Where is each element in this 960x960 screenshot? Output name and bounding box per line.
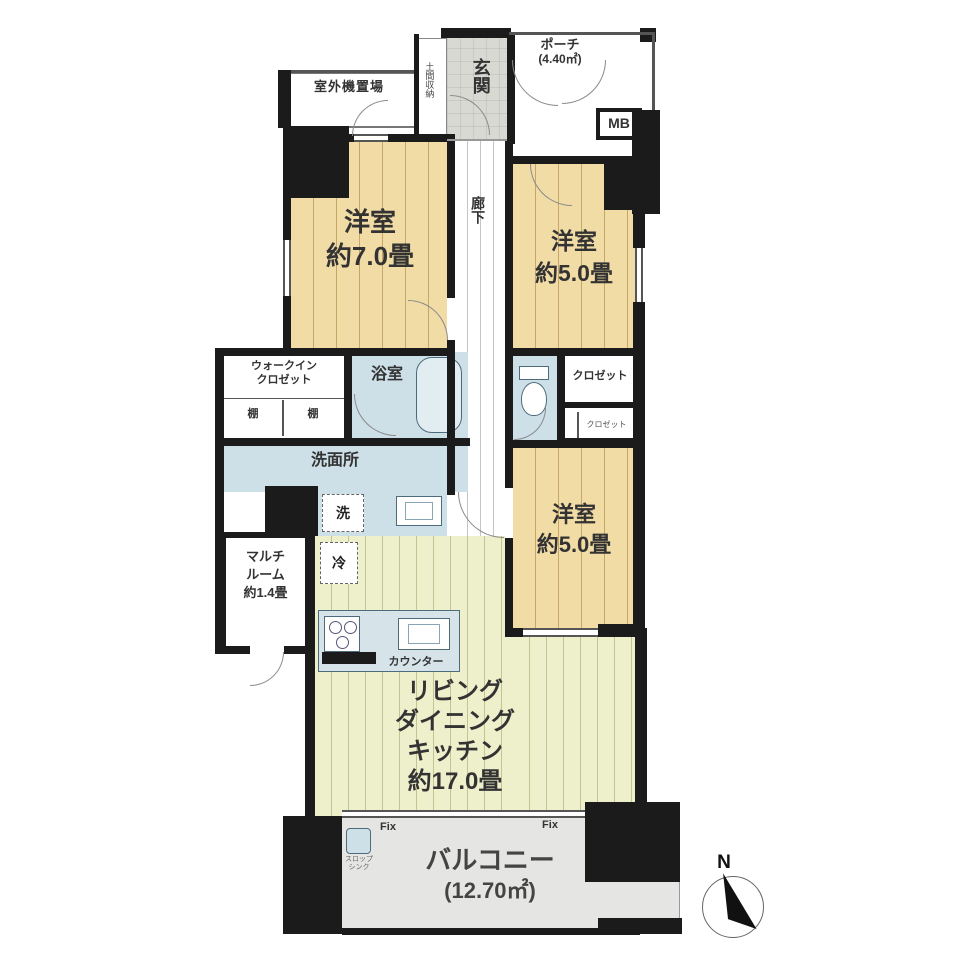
- wic-shelf-right: 棚: [288, 408, 338, 421]
- wall: [283, 198, 291, 240]
- wall: [633, 208, 645, 248]
- porch-label: ポーチ: [512, 38, 608, 53]
- bedroom-5-upper-label: 洋室: [513, 228, 635, 254]
- wall: [215, 532, 315, 538]
- doma-storage-label: 土間収納: [424, 62, 434, 98]
- bathtub: [416, 357, 462, 433]
- door-gap: [505, 488, 513, 538]
- wall: [557, 402, 645, 408]
- wall: [509, 156, 609, 164]
- multi-room-label-1: マルチ: [226, 550, 305, 565]
- closet-upper-label: クロゼット: [565, 370, 635, 383]
- entrance-step-line: [447, 139, 507, 141]
- slop-sink: [346, 828, 371, 854]
- wall: [283, 70, 419, 73]
- window: [635, 248, 643, 302]
- wall: [585, 802, 680, 882]
- washroom-label: 洗面所: [280, 452, 390, 470]
- stove-burner-1: [329, 621, 342, 634]
- wall: [505, 448, 513, 635]
- slop-sink-label-2: シンク: [340, 864, 378, 872]
- wic-label-1: ウォークイン: [224, 360, 344, 373]
- vanity-basin: [405, 502, 433, 520]
- ldk-label-1: リビング: [355, 678, 555, 706]
- wall: [215, 532, 226, 654]
- wall: [283, 816, 342, 934]
- wall: [414, 34, 419, 142]
- ldk-size: 約17.0畳: [355, 768, 555, 796]
- floor-plan: 室外機置場 洋室 約7.0畳 土間収納 玄関 ポーチ (4.40㎡) MB 廊下…: [0, 0, 960, 960]
- balcony-sliding-window: [342, 810, 585, 818]
- wall: [441, 28, 511, 38]
- window: [283, 240, 291, 296]
- wic-shelf-left: 棚: [228, 408, 278, 421]
- bedroom-5-lower-size: 約5.0畳: [508, 532, 640, 557]
- wall: [557, 352, 565, 442]
- corridor-label: 廊下: [470, 196, 486, 224]
- door-arc: [250, 652, 284, 686]
- balcony-label: バルコニー: [390, 846, 590, 876]
- wall: [633, 448, 645, 628]
- wall: [633, 352, 645, 448]
- wall: [505, 355, 513, 448]
- entrance-label: 玄関: [470, 58, 491, 94]
- door-gap: [447, 298, 455, 340]
- wall: [652, 32, 655, 114]
- wall: [635, 628, 647, 804]
- wall: [342, 928, 640, 935]
- wall: [447, 140, 455, 298]
- wall: [633, 302, 645, 352]
- compass-north-label: N: [706, 852, 742, 874]
- toilet-tank: [519, 366, 549, 380]
- wic-shelf-divider: [282, 400, 284, 436]
- kitchen-sink-basin: [408, 624, 440, 644]
- wall: [215, 348, 455, 356]
- ldk-label-3: キッチン: [355, 738, 555, 766]
- wall: [509, 32, 655, 35]
- ldk-label-2: ダイニング: [355, 708, 555, 736]
- multi-room-size: 約1.4畳: [226, 586, 305, 601]
- wall: [215, 438, 470, 446]
- wall: [344, 352, 352, 446]
- wall: [447, 340, 455, 495]
- wall: [604, 156, 645, 210]
- kitchen-counter-label: カウンター: [372, 656, 460, 669]
- closet-lower-label: クロゼット: [578, 420, 635, 429]
- wic-label-2: クロゼット: [224, 374, 344, 387]
- bathroom-label: 浴室: [356, 366, 418, 384]
- balcony-fix-right: Fix: [530, 819, 570, 832]
- wall: [505, 440, 645, 448]
- multi-room-label-2: ルーム: [226, 568, 305, 583]
- balcony-area: (12.70㎡): [390, 878, 590, 903]
- refrigerator-space: 冷: [320, 542, 358, 584]
- slop-sink-label-1: スロップ: [340, 856, 378, 864]
- window: [523, 628, 599, 637]
- bedroom-7-label: 洋室: [291, 208, 449, 238]
- stove-burner-2: [344, 621, 357, 634]
- stove-burner-3: [336, 636, 349, 649]
- bedroom-5-lower-label: 洋室: [513, 502, 635, 527]
- outdoor-unit-space-label: 室外機置場: [294, 80, 404, 95]
- wall: [305, 650, 315, 818]
- wall: [265, 486, 318, 536]
- wall: [278, 70, 291, 128]
- wall: [283, 126, 349, 198]
- bedroom-5-upper-size: 約5.0畳: [508, 260, 640, 286]
- bedroom-7-size: 約7.0畳: [291, 242, 449, 272]
- wall: [505, 348, 645, 356]
- balcony-fix-left: Fix: [368, 821, 408, 834]
- washing-machine-space: 洗: [322, 494, 364, 532]
- wall: [505, 140, 513, 355]
- wall: [598, 918, 682, 934]
- wall: [305, 536, 315, 654]
- wall: [507, 32, 515, 144]
- kitchen-wall-strip: [322, 652, 376, 664]
- wall: [283, 296, 291, 354]
